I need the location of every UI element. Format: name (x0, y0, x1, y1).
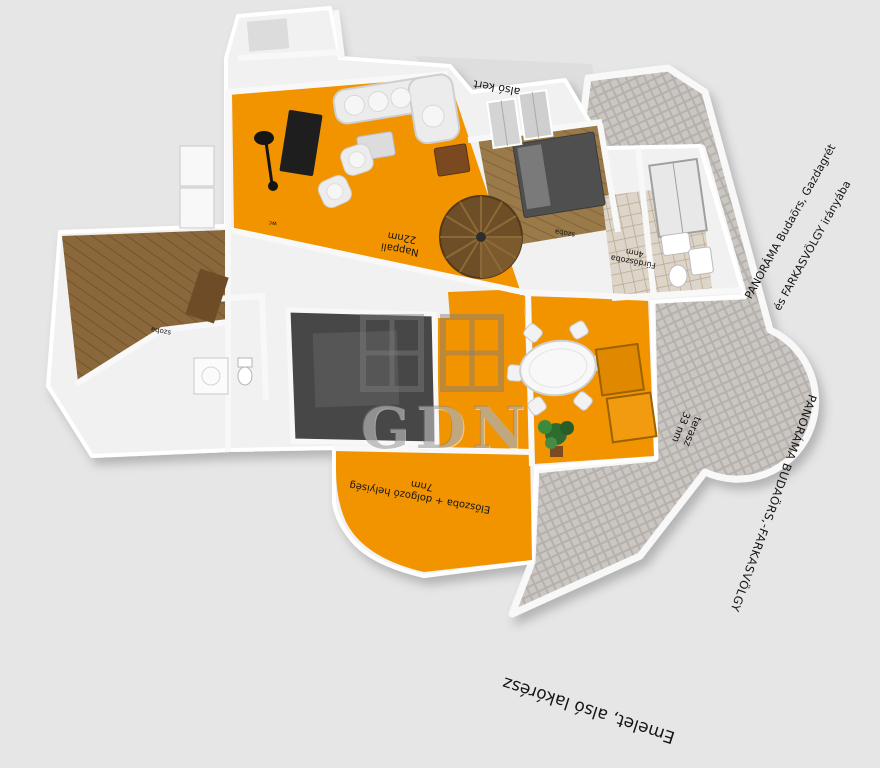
watermark-window-icons (360, 314, 531, 392)
spiral-staircase (440, 196, 522, 278)
closet (180, 188, 214, 228)
toilet (238, 358, 252, 385)
watermark-window-icon (440, 314, 504, 392)
room-label-wc: wc (268, 218, 277, 226)
bed (513, 132, 606, 218)
side-table (434, 144, 470, 177)
watermark-window-icon (360, 314, 424, 392)
floorplan-scene: alsó kert PANORÁMA Budaörs, Gazdagrét és… (0, 0, 880, 768)
wardrobe (649, 159, 707, 237)
washing-machine (194, 358, 228, 394)
closet (180, 146, 214, 186)
top-room-cabinet (247, 18, 289, 51)
watermark-text: GDN (360, 394, 531, 462)
gdn-watermark: GDN (360, 314, 531, 462)
